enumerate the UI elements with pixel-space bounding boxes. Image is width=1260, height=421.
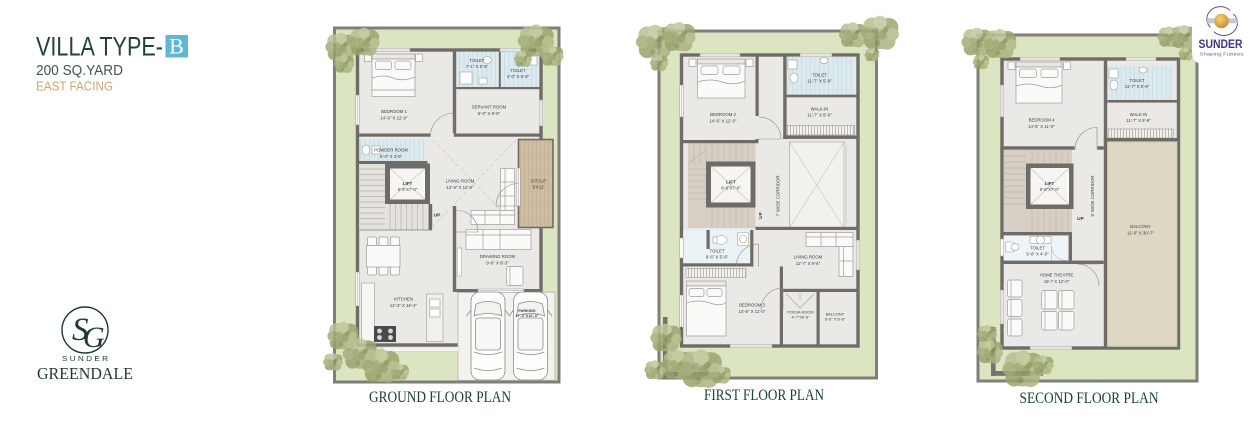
svg-text:S U N D E R: S U N D E R: [62, 356, 108, 363]
svg-text:6'-0" X 9'-6": 6'-0" X 9'-6": [478, 111, 501, 116]
svg-text:HOME THEATRE: HOME THEATRE: [1040, 273, 1074, 278]
svg-text:4'-7"X6'-5": 4'-7"X6'-5": [791, 315, 810, 320]
svg-text:TOILET: TOILET: [812, 73, 827, 78]
svg-text:G: G: [83, 321, 105, 354]
svg-text:11'-7" X 5'-9": 11'-7" X 5'-9": [1125, 84, 1150, 89]
svg-text:6'-6" X 6'-6": 6'-6" X 6'-6": [825, 317, 846, 322]
svg-text:11'-7" X 5'-0": 11'-7" X 5'-0": [807, 113, 832, 118]
svg-text:B: B: [169, 34, 184, 59]
svg-text:BEDROOM 3: BEDROOM 3: [739, 303, 765, 308]
svg-text:TOILET: TOILET: [511, 68, 526, 73]
svg-text:DRAWING ROOM: DRAWING ROOM: [480, 254, 516, 259]
svg-text:14'-6" X 11'-0": 14'-6" X 11'-0": [1028, 124, 1055, 129]
svg-text:UP: UP: [434, 213, 441, 219]
svg-text:KITCHEN: KITCHEN: [394, 297, 413, 302]
svg-text:LIFT: LIFT: [403, 181, 413, 186]
svg-text:BEDROOM 4: BEDROOM 4: [1029, 118, 1055, 123]
svg-text:SITOUT: SITOUT: [531, 179, 547, 184]
svg-text:EAST FACING: EAST FACING: [36, 79, 113, 94]
svg-text:TOILET: TOILET: [470, 58, 485, 63]
svg-text:UP: UP: [758, 211, 764, 218]
svg-text:11'-0" X 30'-7": 11'-0" X 30'-7": [1127, 231, 1154, 236]
svg-text:UP: UP: [1077, 216, 1084, 222]
svg-text:200 SQ.YARD: 200 SQ.YARD: [36, 62, 123, 79]
svg-text:14'-6" X 11'-0": 14'-6" X 11'-0": [739, 309, 766, 314]
svg-text:GREENDALE: GREENDALE: [37, 364, 133, 383]
svg-text:TOILET: TOILET: [710, 249, 725, 254]
svg-text:15'-7 X 12'-0": 15'-7 X 12'-0": [1044, 279, 1070, 284]
svg-text:7'-1" X 5'-6": 7'-1" X 5'-6": [466, 64, 489, 69]
svg-text:11'-7" X 9'-6": 11'-7" X 9'-6": [796, 261, 821, 266]
svg-text:6'-6"X7'-0": 6'-6"X7'-0": [721, 186, 741, 191]
svg-text:12'-2" X 16'-4": 12'-2" X 16'-4": [390, 303, 418, 308]
svg-text:LIFT: LIFT: [1045, 181, 1055, 186]
svg-text:5'-8" X 4'-0": 5'-8" X 4'-0": [1026, 252, 1049, 257]
svg-text:7' WIDE CORRIDOR: 7' WIDE CORRIDOR: [776, 175, 781, 216]
svg-text:5' WIDE CORRIDOR: 5' WIDE CORRIDOR: [1090, 175, 1095, 216]
svg-text:BALCONY: BALCONY: [1130, 224, 1151, 229]
svg-text:WALK-IN: WALK-IN: [811, 107, 829, 112]
svg-text:17'-2"X16'-3": 17'-2"X16'-3": [515, 314, 538, 318]
svg-text:SECOND FLOOR PLAN: SECOND FLOOR PLAN: [1020, 390, 1159, 407]
svg-text:TOILET: TOILET: [1130, 78, 1145, 83]
svg-text:GROUND FLOOR PLAN: GROUND FLOOR PLAN: [369, 389, 511, 406]
svg-text:14'-6" X 12'-0": 14'-6" X 12'-0": [709, 119, 737, 124]
svg-text:14'-6" X 12'-0": 14'-6" X 12'-0": [380, 116, 408, 121]
svg-text:LIVING ROOM: LIVING ROOM: [794, 255, 823, 260]
svg-text:PARKING: PARKING: [518, 309, 535, 313]
svg-text:POWDER ROOM: POWDER ROOM: [374, 148, 408, 153]
svg-text:Shaping Futures: Shaping Futures: [1200, 52, 1245, 57]
svg-text:11'-7" X 5'-9": 11'-7" X 5'-9": [807, 79, 832, 84]
svg-text:6'-6"X7'-0": 6'-6"X7'-0": [1040, 187, 1060, 192]
svg-text:SUNDER: SUNDER: [1199, 37, 1243, 51]
svg-text:LIVING ROOM: LIVING ROOM: [446, 179, 475, 184]
svg-text:WALK-IN: WALK-IN: [1130, 112, 1148, 117]
svg-text:TOILET: TOILET: [1030, 246, 1045, 251]
svg-text:6'-6"X7'-0": 6'-6"X7'-0": [398, 187, 418, 192]
svg-text:5'X12': 5'X12': [533, 185, 545, 190]
svg-text:8'-0" X 3'-6": 8'-0" X 3'-6": [380, 154, 403, 159]
svg-text:LIFT: LIFT: [726, 180, 736, 185]
svg-text:11'-7" X 5'-9": 11'-7" X 5'-9": [1126, 118, 1151, 123]
svg-text:13'-9" X 12'-0": 13'-9" X 12'-0": [446, 185, 474, 190]
svg-text:9'-6" X 8'-3": 9'-6" X 8'-3": [486, 261, 509, 266]
svg-text:SERVANT ROOM: SERVANT ROOM: [472, 105, 507, 110]
svg-text:4'-0" X 5'-6": 4'-0" X 5'-6": [507, 74, 530, 79]
svg-text:FIRST FLOOR PLAN: FIRST FLOOR PLAN: [704, 387, 824, 404]
svg-text:9'-6" X 5'-6": 9'-6" X 5'-6": [706, 255, 729, 260]
svg-text:VILLA TYPE-: VILLA TYPE-: [36, 32, 163, 62]
svg-text:BEDROOM 2: BEDROOM 2: [710, 112, 736, 117]
svg-text:BEDROOM 1: BEDROOM 1: [381, 109, 407, 114]
